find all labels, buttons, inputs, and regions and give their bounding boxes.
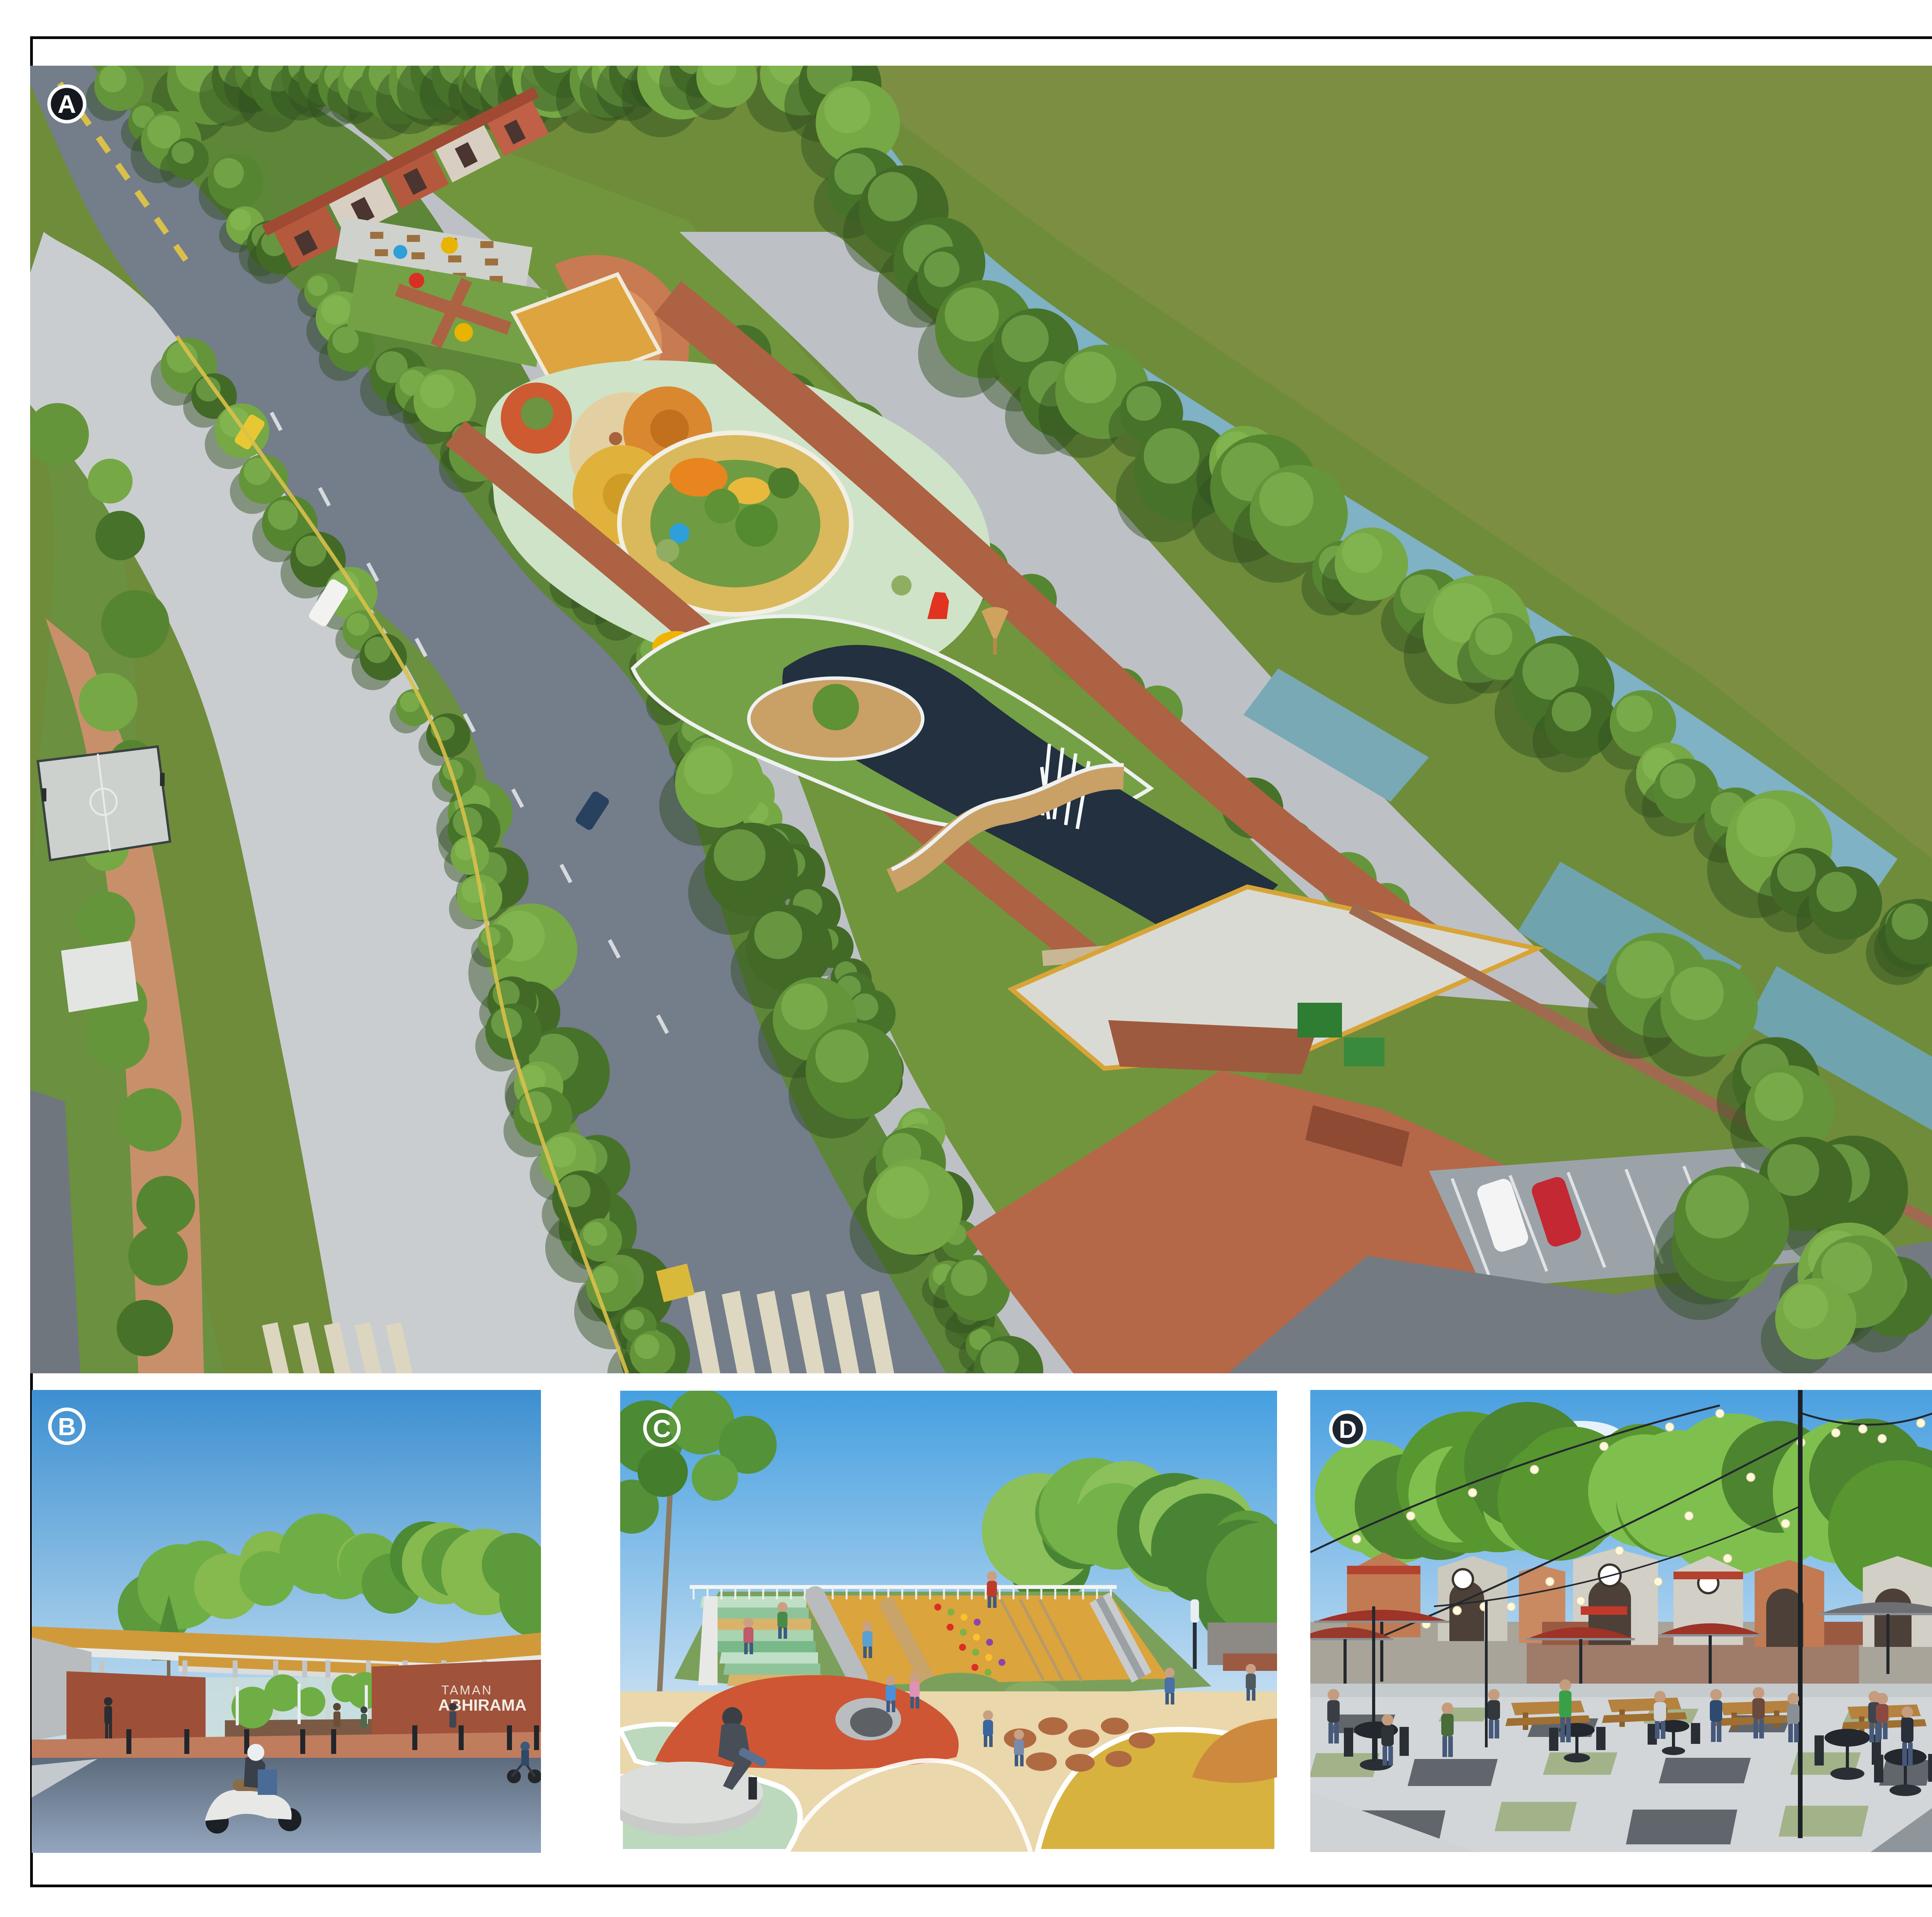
svg-text:D: D (1339, 1415, 1357, 1443)
svg-text:B: B (58, 1413, 76, 1441)
svg-text:TAMAN: TAMAN (441, 1683, 493, 1697)
svg-text:A: A (58, 90, 76, 118)
svg-text:C: C (653, 1415, 671, 1442)
